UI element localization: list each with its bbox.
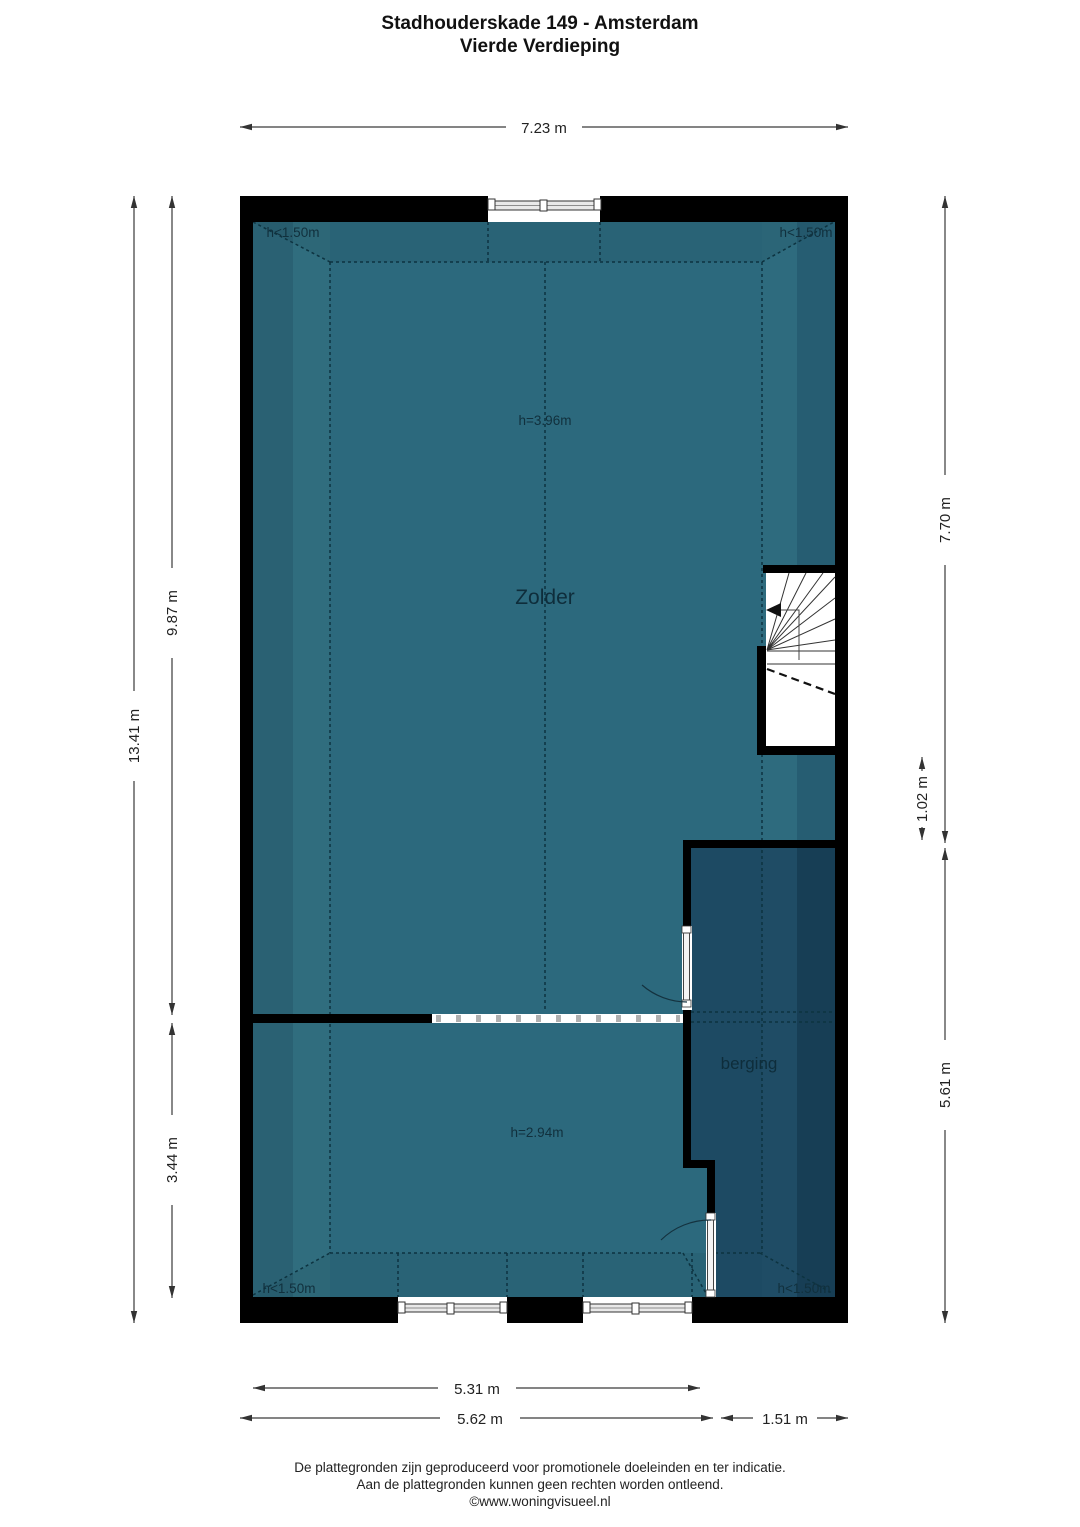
- window-frame-cap: [500, 1302, 507, 1313]
- window-mullion: [632, 1303, 639, 1314]
- door-jamb: [706, 1290, 715, 1297]
- dim-value: 5.62 m: [457, 1411, 503, 1428]
- wall-bottom-segment-2: [507, 1297, 583, 1323]
- wall-bottom-segment-3: [692, 1297, 848, 1323]
- window-bottom-left: [398, 1302, 507, 1314]
- dim-bottom-right-width: 1.51 m: [721, 1406, 848, 1430]
- window-bottom-right: [583, 1302, 692, 1314]
- dim-bottom-left-width: 5.62 m: [240, 1406, 713, 1430]
- floor-plan-canvas: Zolder berging h=3.96m h=2.94m h<1.50m h…: [0, 0, 1080, 1527]
- window-top: [488, 199, 601, 211]
- window-mullion: [447, 1303, 454, 1314]
- window-frame-cap: [398, 1302, 405, 1313]
- door-jamb: [682, 1000, 691, 1007]
- dim-right-upper-height: 7.70 m: [932, 196, 958, 843]
- wall-top-left-segment: [240, 196, 488, 222]
- wall-top-right-segment: [600, 196, 848, 222]
- door-leaf: [684, 933, 690, 1000]
- wall-stair-bottom: [757, 746, 835, 755]
- dim-left-lower-height: 3.44 m: [159, 1023, 185, 1298]
- door-jamb: [682, 926, 691, 933]
- wall-berging-jog: [683, 1160, 715, 1168]
- disclaimer: De plattegronden zijn geproduceerd voor …: [0, 1459, 1080, 1510]
- zolder-left-slope-band-outer: [253, 222, 293, 1297]
- height-label-zolder-upper: h=3.96m: [519, 413, 572, 428]
- dim-value: 7.23 m: [521, 120, 567, 137]
- wall-bottom-segment-1: [240, 1297, 398, 1323]
- wall-divider: [253, 1014, 432, 1023]
- open-connection: [432, 1014, 683, 1023]
- height-label-corner-bottom-left: h<1.50m: [263, 1281, 316, 1296]
- window-frame-cap: [488, 199, 495, 210]
- wall-right: [835, 196, 848, 1323]
- dim-bottom-inner-width: 5.31 m: [253, 1376, 700, 1400]
- disclaimer-line-3: ©www.woningvisueel.nl: [0, 1493, 1080, 1510]
- height-label-corner-bottom-right: h<1.50m: [778, 1281, 831, 1296]
- zolder-left-slope-band-inner: [293, 222, 330, 1297]
- dim-left-upper-height: 9.87 m: [159, 196, 185, 1015]
- window-frame-cap: [594, 199, 601, 210]
- dim-value: 13.41 m: [126, 709, 143, 763]
- door-jamb: [706, 1213, 715, 1220]
- room-label-berging: berging: [721, 1054, 778, 1073]
- wall-stair-top: [763, 565, 835, 573]
- wall-berging-left-upper-1: [683, 848, 691, 928]
- window-frame-cap: [685, 1302, 692, 1313]
- wall-berging-left-lower: [707, 1168, 715, 1213]
- wall-berging-top: [683, 840, 848, 848]
- dim-value: 5.61 m: [937, 1062, 954, 1108]
- dim-value: 1.02 m: [914, 776, 931, 822]
- dim-value: 7.70 m: [937, 497, 954, 543]
- window-mullion: [540, 200, 547, 211]
- stairwell-floor: [766, 573, 835, 746]
- height-label-zolder-lower: h=2.94m: [511, 1125, 564, 1140]
- wall-stair-left: [757, 646, 766, 755]
- dim-right-stair-offset: 1.02 m: [909, 757, 935, 840]
- dim-value: 5.31 m: [454, 1381, 500, 1398]
- dim-value: 1.51 m: [762, 1411, 808, 1428]
- dim-left-total-height: 13.41 m: [121, 196, 147, 1323]
- height-label-corner-top-left: h<1.50m: [267, 225, 320, 240]
- berging-slope-band-outer: [797, 848, 835, 1297]
- wall-berging-left-upper-2: [683, 1008, 691, 1168]
- disclaimer-line-1: De plattegronden zijn geproduceerd voor …: [0, 1459, 1080, 1476]
- dim-value: 3.44 m: [164, 1137, 181, 1183]
- height-label-corner-top-right: h<1.50m: [780, 225, 833, 240]
- disclaimer-line-2: Aan de plattegronden kunnen geen rechten…: [0, 1476, 1080, 1493]
- room-label-zolder: Zolder: [515, 586, 575, 609]
- door-leaf: [708, 1220, 714, 1290]
- dim-right-lower-height: 5.61 m: [932, 848, 958, 1323]
- dim-top-width: 7.23 m: [240, 114, 848, 138]
- window-frame-cap: [583, 1302, 590, 1313]
- zolder-top-slope-shade: [253, 222, 835, 262]
- dim-value: 9.87 m: [164, 590, 181, 636]
- wall-left: [240, 196, 253, 1323]
